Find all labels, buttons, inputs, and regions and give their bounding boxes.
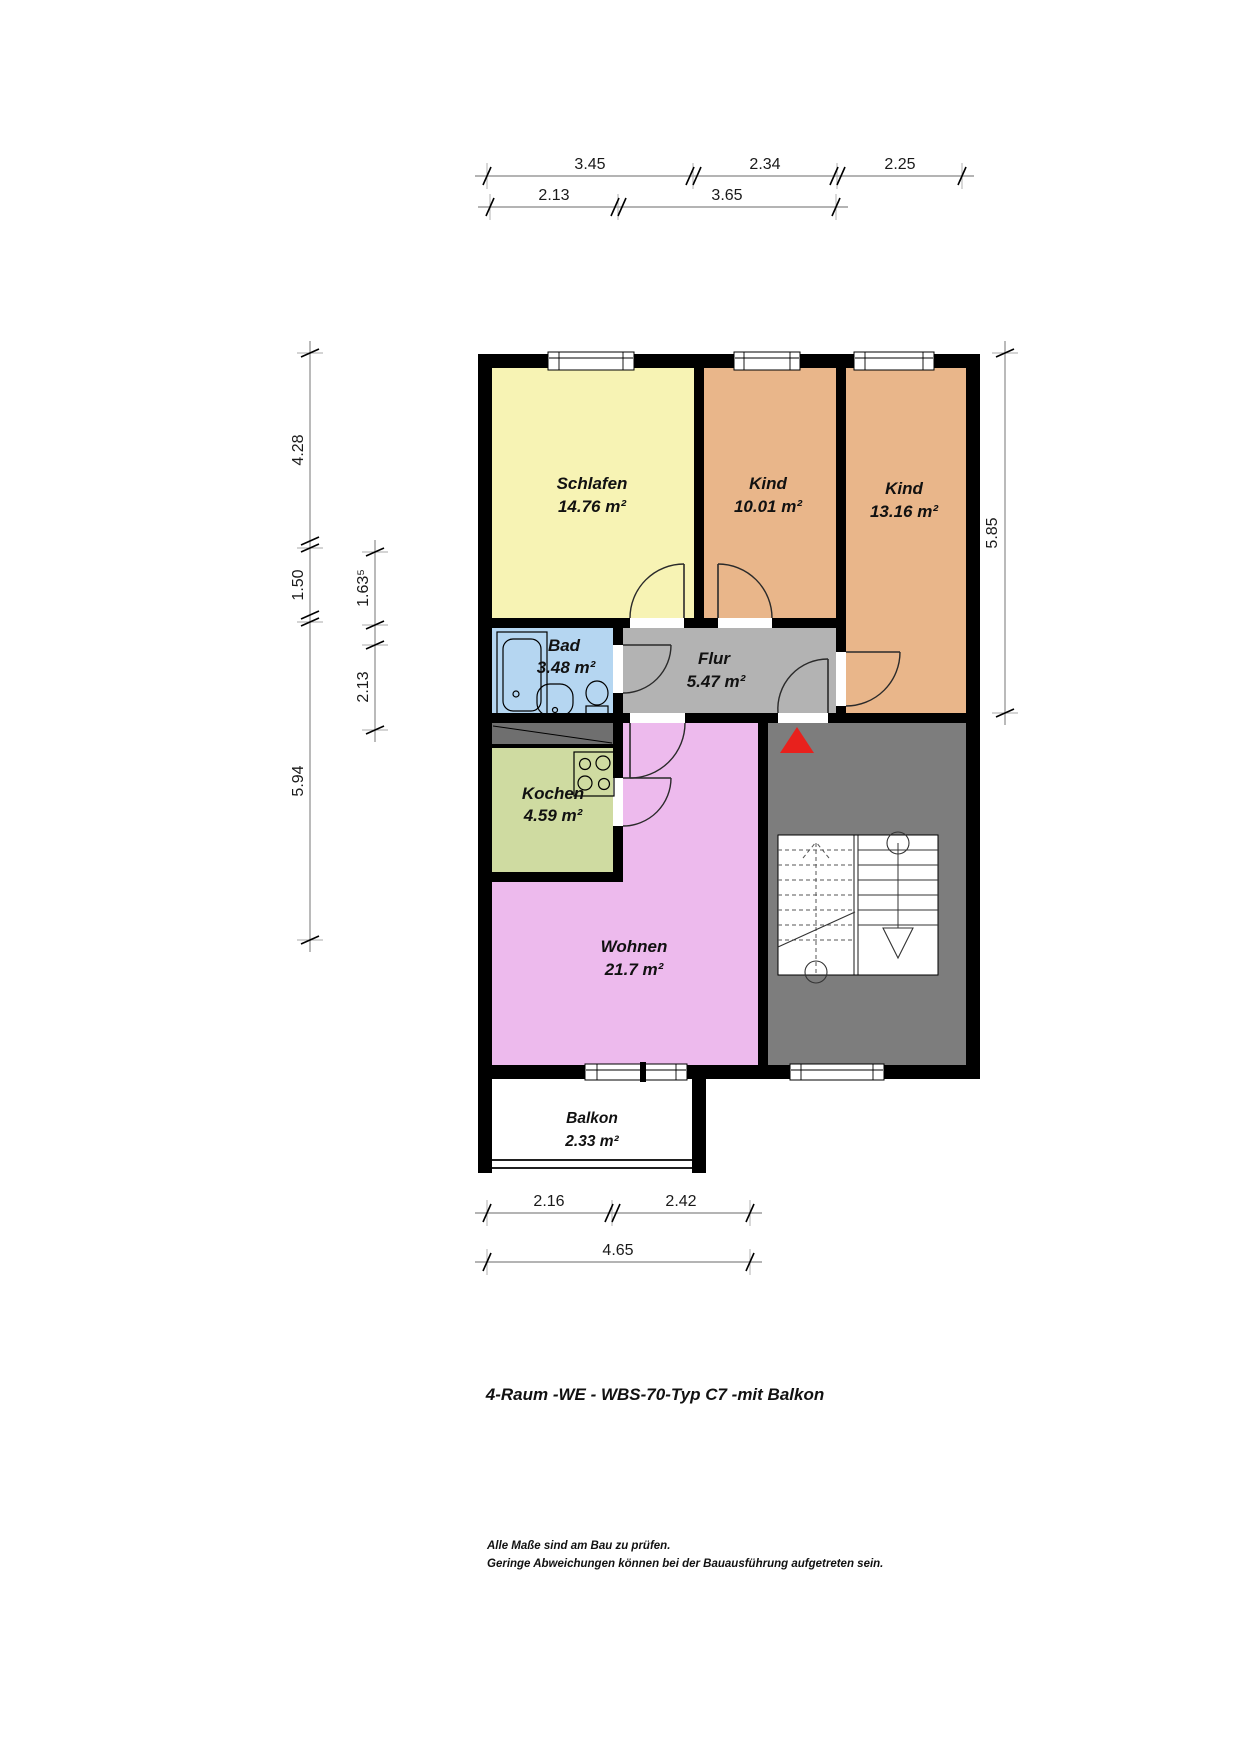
room-kochen-area: 4.59 m²: [523, 806, 584, 825]
dim-left-594: 5.94: [290, 765, 307, 796]
room-wohnen-name: Wohnen: [601, 937, 668, 956]
dim-left-150: 1.50: [290, 569, 307, 600]
door-gap-bad: [613, 645, 623, 693]
door-gap-wohnen: [630, 713, 685, 723]
room-wohnen-fill: [623, 713, 758, 1065]
wall-wohnen-stairwell: [758, 723, 768, 1065]
room-kind2-name: Kind: [885, 479, 923, 498]
plan-title: 4-Raum -WE - WBS-70-Typ C7 -mit Balkon: [485, 1385, 824, 1404]
window-stairwell: [790, 1064, 884, 1080]
room-kind1-name: Kind: [749, 474, 787, 493]
room-kind2-fill: [846, 368, 966, 713]
window-wohnen-balcony: [585, 1064, 687, 1080]
room-balkon-area: 2.33 m²: [564, 1133, 619, 1150]
wall-left: [478, 354, 492, 1173]
room-schlafen-area: 14.76 m²: [558, 497, 627, 516]
room-flur-area: 5.47 m²: [687, 672, 747, 691]
dim-left-428: 4.28: [290, 434, 307, 465]
room-flur-fill: [623, 628, 836, 713]
room-kind2-area: 13.16 m²: [870, 502, 939, 521]
dim-top-234: 2.34: [749, 156, 780, 173]
window-kind2: [854, 352, 934, 370]
dim-bottom-242: 2.42: [665, 1193, 696, 1210]
door-gap-kind1: [718, 618, 772, 628]
room-kind1-area: 10.01 m²: [734, 497, 803, 516]
dim-left-1635: 1.63⁵: [355, 569, 372, 607]
dim-bottom-216: 2.16: [533, 1193, 564, 1210]
room-wohnen-fill-2: [492, 882, 623, 1065]
floorplan-drawing: Schlafen 14.76 m² Kind 10.01 m² Kind 13.…: [0, 0, 1240, 1754]
wall-shaft-bottom: [492, 744, 623, 748]
dim-right-585: 5.85: [984, 517, 1001, 548]
balcony-railing: [492, 1160, 692, 1168]
window-schlafen: [548, 352, 634, 370]
note-line-2: Geringe Abweichungen können bei der Baua…: [487, 1558, 883, 1570]
door-gap-kind2: [836, 652, 846, 706]
wall-kochen-bottom: [492, 872, 623, 882]
dim-top-225: 2.25: [884, 156, 915, 173]
room-kind1-fill: [704, 368, 836, 618]
dim-bottom-465: 4.65: [602, 1242, 633, 1259]
room-balkon-name: Balkon: [566, 1110, 618, 1127]
room-bad-name: Bad: [548, 636, 581, 655]
room-schlafen-name: Schlafen: [557, 474, 628, 493]
staircase: [778, 832, 938, 983]
dim-left-213: 2.13: [355, 671, 372, 702]
room-wohnen-area: 21.7 m²: [604, 960, 665, 979]
room-schlafen-fill: [492, 368, 694, 618]
wall-balcony-right: [692, 1079, 706, 1173]
note-line-1: Alle Maße sind am Bau zu prüfen.: [486, 1540, 670, 1552]
room-bad-area: 3.48 m²: [537, 658, 597, 677]
dim-top-213: 2.13: [538, 187, 569, 204]
wall-schlafen-kind1: [694, 368, 704, 618]
window-wohnen-mullion: [640, 1062, 646, 1082]
dim-top-345: 3.45: [574, 156, 605, 173]
floorplan-sheet: Schlafen 14.76 m² Kind 10.01 m² Kind 13.…: [0, 0, 1240, 1754]
room-kochen-name: Kochen: [522, 784, 584, 803]
door-gap-entry: [778, 713, 828, 723]
wall-bottom: [478, 1065, 980, 1079]
room-flur-name: Flur: [698, 649, 731, 668]
wall-mid-horizontal: [478, 713, 980, 723]
door-gap-schlafen: [630, 618, 684, 628]
dim-top-365: 3.65: [711, 187, 742, 204]
